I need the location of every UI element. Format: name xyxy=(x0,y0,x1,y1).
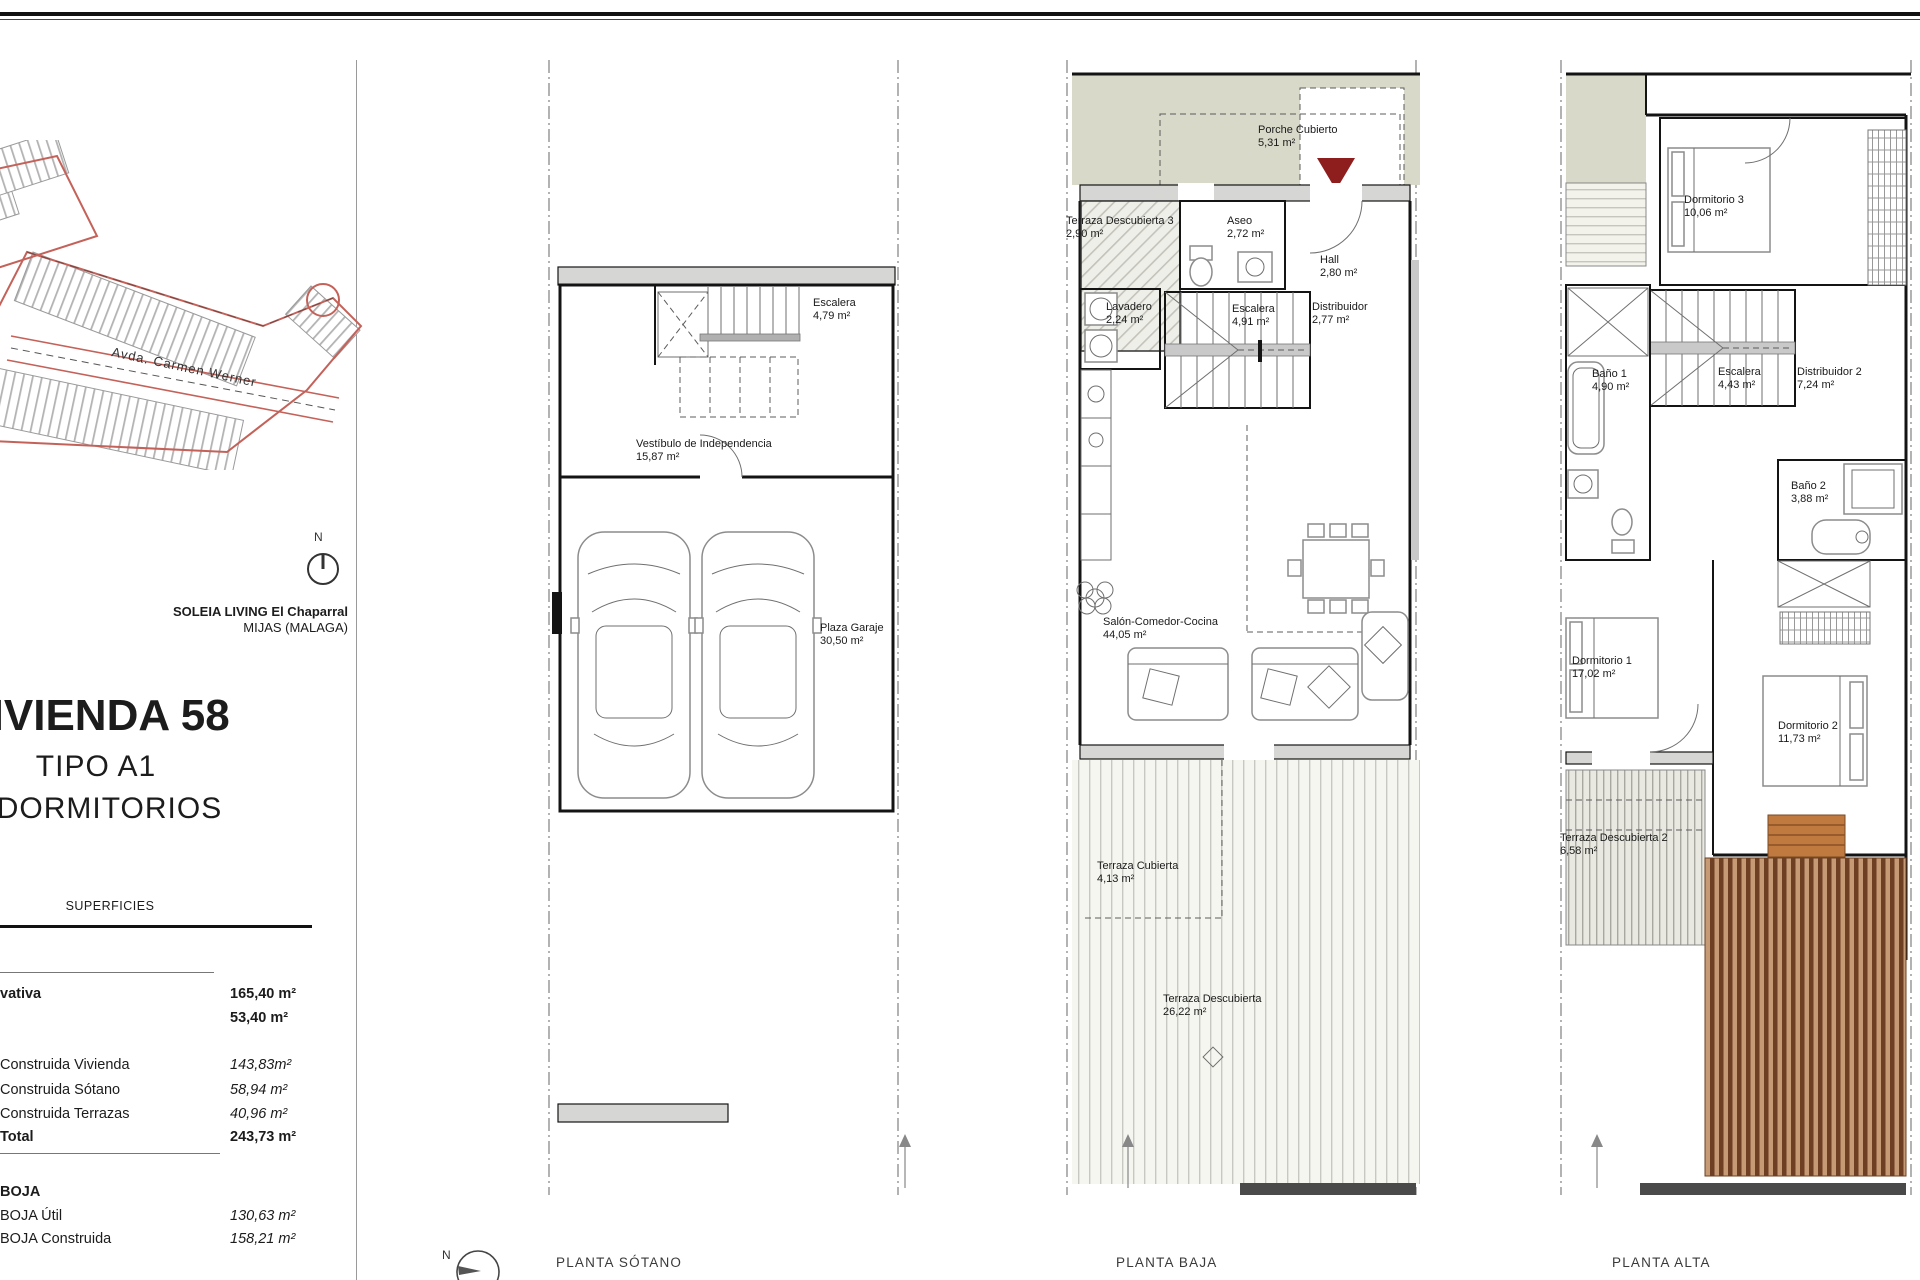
plan-title-alta: PLANTA ALTA xyxy=(1612,1255,1711,1270)
room-label: Plaza Garaje30,50 m² xyxy=(820,622,884,648)
sheet-bedrooms: 3 DORMITORIOS xyxy=(0,792,237,826)
room-label: Escalera4,43 m² xyxy=(1718,366,1761,392)
room-label: Baño 14,90 m² xyxy=(1592,368,1629,394)
table-rule xyxy=(0,925,312,928)
room-label: Terraza Descubierta 26,58 m² xyxy=(1560,832,1668,858)
room-label: Dormitorio 211,73 m² xyxy=(1778,720,1838,746)
room-label: Hall2,80 m² xyxy=(1320,254,1357,280)
superficies-header: SUPERFICIES xyxy=(0,899,220,913)
table-rule xyxy=(0,972,214,973)
plan-sheet: Avda. Carmen Werner N SOLEIA LIVING El C… xyxy=(0,0,1920,1280)
project-block: SOLEIA LIVING El Chaparral MIJAS (MALAGA… xyxy=(108,604,348,637)
room-label: Distribuidor2,77 m² xyxy=(1312,301,1368,327)
title-block: VIVIENDA 58 TIPO A1 3 DORMITORIOS xyxy=(0,694,237,826)
project-location: MIJAS (MALAGA) xyxy=(108,620,348,636)
plan-title-sotano: PLANTA SÓTANO xyxy=(556,1255,682,1270)
north-label-top: N xyxy=(314,530,323,544)
room-label: Baño 23,88 m² xyxy=(1791,480,1828,506)
room-label: Escalera4,79 m² xyxy=(813,297,856,323)
room-label: Salón-Comedor-Cocina44,05 m² xyxy=(1103,616,1218,642)
room-label: Dormitorio 117,02 m² xyxy=(1572,655,1632,681)
north-compass-top xyxy=(304,550,344,590)
room-label: Dormitorio 310,06 m² xyxy=(1684,194,1744,220)
room-label: Lavadero2,24 m² xyxy=(1106,301,1152,327)
room-label: Escalera4,91 m² xyxy=(1232,303,1275,329)
north-compass-bottom xyxy=(454,1238,504,1280)
north-label-bottom: N xyxy=(442,1248,451,1262)
room-label: Vestíbulo de Independencia15,87 m² xyxy=(636,438,772,464)
plan-title-baja: PLANTA BAJA xyxy=(1116,1255,1217,1270)
room-label: Aseo2,72 m² xyxy=(1227,215,1264,241)
room-label: Porche Cubierto5,31 m² xyxy=(1258,124,1338,150)
project-name: SOLEIA LIVING El Chaparral xyxy=(108,604,348,620)
room-label: Terraza Cubierta4,13 m² xyxy=(1097,860,1178,886)
room-label: Terraza Descubierta26,22 m² xyxy=(1163,993,1261,1019)
top-rule-thick xyxy=(0,12,1920,16)
top-rule-thin xyxy=(0,19,1920,20)
room-label: Distribuidor 27,24 m² xyxy=(1797,366,1862,392)
sheet-type: TIPO A1 xyxy=(0,750,237,784)
plan-alta xyxy=(1550,55,1920,1195)
sheet-title: VIVIENDA 58 xyxy=(0,694,237,738)
site-map: Avda. Carmen Werner xyxy=(0,140,375,470)
table-rule xyxy=(0,1153,220,1154)
room-label: Terraza Descubierta 32,90 m² xyxy=(1066,215,1174,241)
